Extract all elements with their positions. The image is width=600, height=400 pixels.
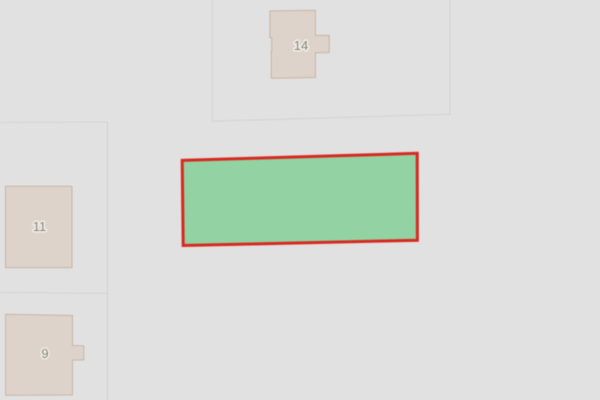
svg-text:14: 14 xyxy=(294,38,308,53)
svg-text:11: 11 xyxy=(33,219,47,234)
svg-text:9: 9 xyxy=(41,346,48,361)
